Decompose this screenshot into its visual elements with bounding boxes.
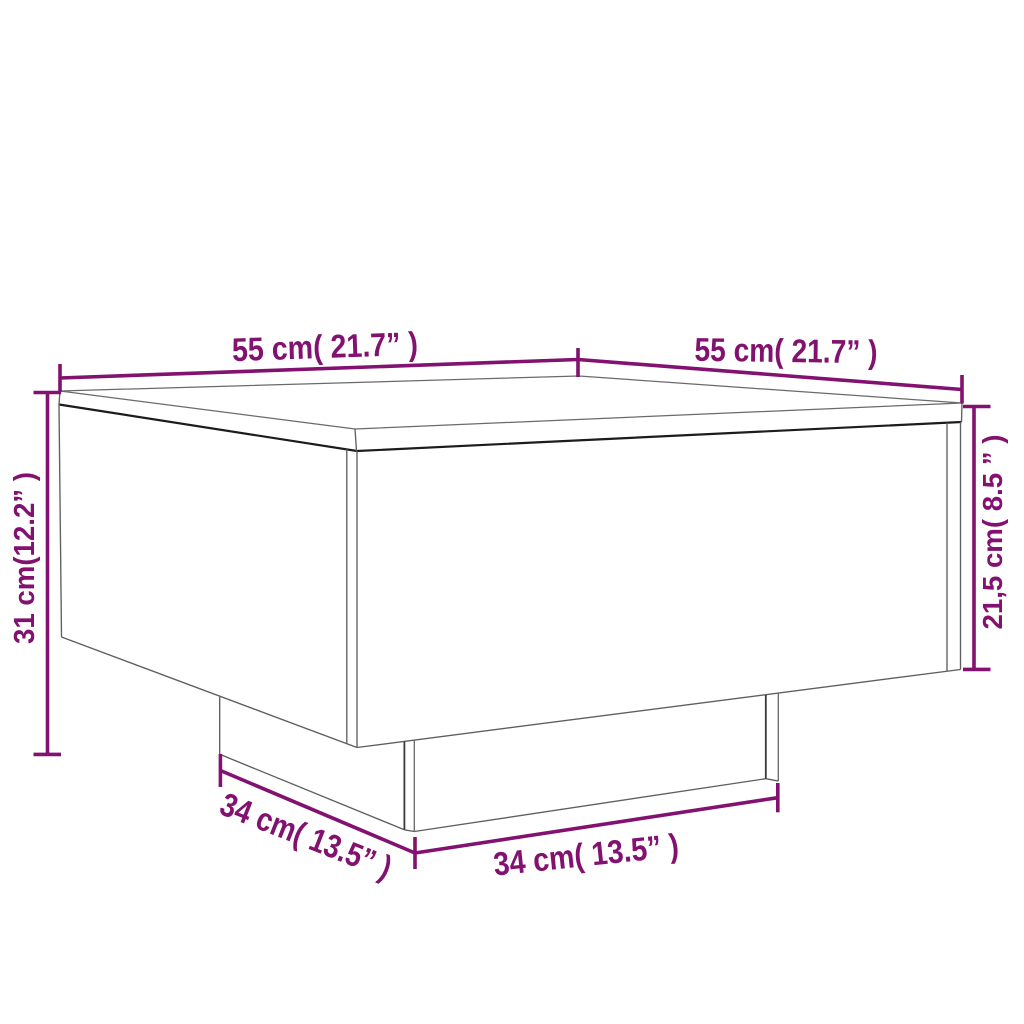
svg-text:55 cm( 21.7” ): 55 cm( 21.7” ): [694, 331, 877, 371]
svg-text:31 cm(12.2” ): 31 cm(12.2” ): [9, 472, 41, 644]
svg-text:21,5 cm( 8.5 ” ): 21,5 cm( 8.5 ” ): [977, 435, 1008, 630]
svg-text:55 cm( 21.7” ): 55 cm( 21.7” ): [231, 325, 418, 368]
